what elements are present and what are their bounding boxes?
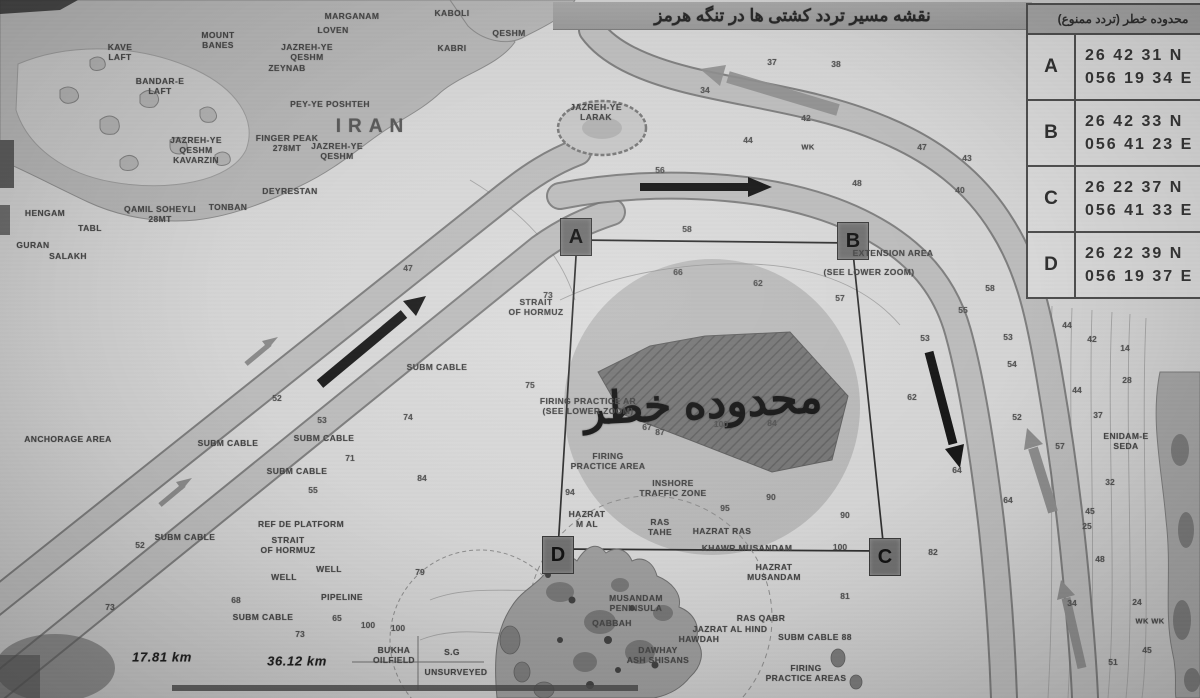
- larak-island: [558, 101, 646, 155]
- corner-marker-b: B: [837, 222, 869, 260]
- coordinate-values: 26 22 37 N056 41 33 E: [1076, 167, 1200, 231]
- chart-title: نقشه مسیر تردد کشتی ها در تنگه هرمز: [654, 6, 930, 26]
- coordinate-row: C26 22 37 N056 41 33 E: [1028, 167, 1200, 233]
- coordinates-table-body: A26 42 31 N056 19 34 EB26 42 33 N056 41 …: [1028, 35, 1200, 297]
- coordinate-values: 26 22 39 N056 19 37 E: [1076, 233, 1200, 297]
- latitude-value: 26 42 31 N: [1085, 44, 1200, 67]
- danger-zone-coordinates-table: محدوده خطر (تردد ممنوع) A26 42 31 N056 1…: [1026, 3, 1200, 299]
- coordinate-values: 26 42 33 N056 41 23 E: [1076, 101, 1200, 165]
- coordinate-point-letter: C: [1028, 167, 1076, 231]
- latitude-value: 26 22 39 N: [1085, 242, 1200, 265]
- coordinate-row: B26 42 33 N056 41 23 E: [1028, 101, 1200, 167]
- longitude-value: 056 41 23 E: [1085, 133, 1200, 156]
- corner-marker-c: C: [869, 538, 901, 576]
- coordinate-row: A26 42 31 N056 19 34 E: [1028, 35, 1200, 101]
- latitude-value: 26 22 37 N: [1085, 176, 1200, 199]
- nautical-chart-photo: نقشه مسیر تردد کشتی ها در تنگه هرمز محدو…: [0, 0, 1200, 698]
- coordinate-point-letter: D: [1028, 233, 1076, 297]
- longitude-value: 056 19 37 E: [1085, 265, 1200, 288]
- longitude-value: 056 19 34 E: [1085, 67, 1200, 90]
- coordinate-row: D26 22 39 N056 19 37 E: [1028, 233, 1200, 297]
- coordinate-values: 26 42 31 N056 19 34 E: [1076, 35, 1200, 99]
- chart-title-bar: نقشه مسیر تردد کشتی ها در تنگه هرمز: [553, 2, 1032, 30]
- coordinate-point-letter: A: [1028, 35, 1076, 99]
- coordinate-point-letter: B: [1028, 101, 1076, 165]
- longitude-value: 056 41 33 E: [1085, 199, 1200, 222]
- corner-marker-a: A: [560, 218, 592, 256]
- coordinates-table-header: محدوده خطر (تردد ممنوع): [1028, 5, 1200, 35]
- corner-marker-d: D: [542, 536, 574, 574]
- latitude-value: 26 42 33 N: [1085, 110, 1200, 133]
- chart-graphics: [0, 0, 1200, 698]
